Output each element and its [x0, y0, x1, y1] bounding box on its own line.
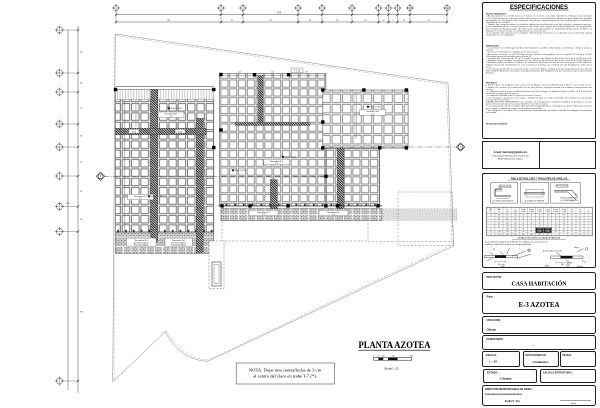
svg-text:• Concreto: f'c = 250 kg/cm2: • Concreto: f'c = 250 kg/cm2 de cimentac… — [486, 47, 592, 50]
svg-text:45°: 45° — [493, 249, 496, 251]
svg-text:47: 47 — [547, 220, 549, 222]
svg-text:5/16: 5/16 — [498, 214, 501, 216]
svg-text:156: 156 — [538, 234, 541, 236]
svg-text:5.07: 5.07 — [514, 228, 517, 230]
svg-text:78: 78 — [539, 226, 541, 228]
svg-text:27: 27 — [531, 217, 533, 219]
svg-text:63: 63 — [563, 223, 565, 225]
svg-text:120: 120 — [522, 234, 525, 236]
svg-text:FECHA:: FECHA: — [563, 354, 573, 357]
svg-text:(T-1): (T-1) — [169, 116, 173, 118]
svg-text:Nervadura N-2: Nervadura N-2 — [135, 240, 149, 242]
svg-text:40: 40 — [571, 226, 573, 228]
svg-text:CASA HABITACIÓN: CASA HABITACIÓN — [512, 280, 568, 288]
svg-text:104: 104 — [555, 228, 558, 230]
svg-text:Nervadura N-1: Nervadura N-1 — [165, 113, 177, 116]
svg-text:UBICACIÓN :: UBICACIÓN : — [487, 319, 502, 322]
svg-text:22: 22 — [531, 214, 533, 216]
svg-text:Nivel +N 273.5: Nivel +N 273.5 — [370, 106, 381, 108]
svg-text:Nivel +N 273.5: Nivel +N 273.5 — [235, 170, 246, 172]
svg-text:Nivel +N 273.5: Nivel +N 273.5 — [151, 196, 162, 198]
svg-text:84: 84 — [555, 226, 557, 228]
svg-text:70: 70 — [547, 226, 549, 228]
svg-text:A: A — [59, 28, 61, 32]
svg-text:25: 25 — [579, 223, 581, 225]
svg-text:Nervadura N-1: Nervadura N-1 — [134, 195, 146, 198]
svg-text:Calle Pejonate Nod 115 altos,: Calle Pejonate Nod 115 altos, Gaviotas S… — [492, 155, 529, 158]
svg-text:3.81: 3.81 — [506, 234, 509, 236]
svg-text:40: 40 — [523, 220, 525, 222]
svg-text:65: 65 — [539, 223, 541, 225]
svg-text:Lg: Lg — [579, 209, 581, 211]
svg-text:94: 94 — [563, 228, 565, 230]
svg-text:200: 200 — [392, 356, 395, 358]
svg-text:3/4: 3/4 — [498, 226, 500, 228]
svg-text:50: 50 — [579, 231, 581, 233]
svg-text:1.98: 1.98 — [514, 223, 517, 225]
svg-text:25: 25 — [523, 214, 525, 216]
svg-text:NOTA: Dejar una contraflecha d: NOTA: Dejar una contraflecha de 3 cm — [249, 368, 322, 373]
svg-text:Federal).: Federal). — [486, 73, 494, 75]
svg-text:(T-1): (T-1) — [275, 163, 279, 165]
svg-text:CALCULO ESTRUCTURAL :: CALCULO ESTRUCTURAL : — [543, 371, 574, 374]
svg-text:80: 80 — [523, 228, 525, 230]
svg-text:279: 279 — [277, 11, 282, 14]
svg-text:H: H — [59, 230, 61, 234]
svg-text:0.79: 0.79 — [506, 214, 509, 216]
svg-text:D.R.O. No.: D.R.O. No. — [504, 399, 521, 403]
svg-text:1.90: 1.90 — [506, 226, 509, 228]
svg-text:Chiapas: Chiapas — [500, 377, 512, 381]
svg-text:150: 150 — [305, 71, 308, 73]
svg-text:38: 38 — [563, 217, 565, 219]
svg-text:56: 56 — [555, 220, 557, 222]
svg-text:54: 54 — [531, 226, 533, 228]
svg-text:36: 36 — [531, 220, 533, 222]
svg-text:otra medida.: otra medida. — [486, 111, 497, 114]
svg-text:3.18: 3.18 — [506, 231, 509, 233]
svg-text:140: 140 — [546, 234, 549, 236]
svg-text:ESTADO :: ESTADO : — [487, 371, 499, 374]
svg-text:20: 20 — [571, 214, 573, 216]
svg-text:30: 30 — [571, 220, 573, 222]
svg-text:60: 60 — [523, 226, 525, 228]
svg-text:1/2: 1/2 — [498, 220, 500, 222]
svg-text:3/8: 3/8 — [498, 217, 500, 219]
svg-text:39: 39 — [539, 217, 541, 219]
svg-text:NO SE: NO SE — [537, 228, 541, 230]
svg-text:0: 0 — [373, 356, 374, 358]
svg-text:0.95: 0.95 — [506, 217, 509, 219]
svg-text:1 1/4: 1 1/4 — [497, 231, 500, 233]
svg-text:50: 50 — [523, 223, 525, 225]
svg-text:100: 100 — [382, 356, 385, 358]
svg-text:1 : 50: 1 : 50 — [489, 360, 497, 364]
svg-text:Nivel +N 273.5: Nivel +N 273.5 — [285, 156, 296, 158]
svg-text:70: 70 — [571, 231, 573, 233]
svg-text:72: 72 — [531, 228, 533, 230]
svg-text:E-mail: dienmarq@gmail.com: E-mail: dienmarq@gmail.com — [494, 151, 528, 154]
svg-text:75: 75 — [563, 226, 565, 228]
svg-text:****************************: **************************** — [485, 393, 523, 397]
svg-text:NO SE: NO SE — [546, 228, 550, 230]
svg-text:Tope(+): Tope(+) — [574, 247, 580, 249]
svg-text:D: D — [59, 122, 61, 126]
svg-text:130: 130 — [555, 231, 558, 233]
svg-text:NTC-RCDF (Normas Técnicas Comp: NTC-RCDF (Normas Técnicas Complementaria… — [486, 70, 592, 73]
svg-text:NOTAS ADICIONALES:: NOTAS ADICIONALES: — [486, 123, 508, 126]
svg-text:Escala 1 : 50: Escala 1 : 50 — [385, 368, 399, 371]
svg-text:Lb (cm): Lb (cm) — [562, 209, 567, 211]
svg-text:35: 35 — [571, 223, 573, 225]
svg-text:1.59: 1.59 — [506, 223, 509, 225]
svg-text:PROYECTO:: PROYECTO: — [487, 275, 503, 279]
svg-text:0.49: 0.49 — [514, 214, 517, 216]
svg-text:Ld (cm): Ld (cm) — [521, 209, 526, 211]
svg-text:2.85: 2.85 — [514, 226, 517, 228]
svg-text:T-7 (*): T-7 (*) — [294, 70, 301, 73]
svg-text:40: 40 — [579, 228, 581, 230]
svg-text:52: 52 — [539, 220, 541, 222]
svg-text:300: 300 — [410, 356, 413, 358]
svg-text:presentarán a su ser longitudi: presentarán a su ser longitudinal. — [486, 34, 515, 37]
svg-text:C: C — [59, 90, 61, 94]
svg-text:varillas se soldarán de acuerd: varillas se soldarán de acuerdo con el s… — [485, 243, 531, 246]
svg-text:• Block hueco de 15x20x40 con: • Block hueco de 15x20x40 con una resist… — [486, 63, 593, 66]
svg-text:Centímetros: Centímetros — [533, 360, 550, 364]
svg-text:150: 150 — [238, 71, 241, 73]
svg-text:1 1/2: 1 1/2 — [497, 234, 500, 236]
svg-text:1.27: 1.27 — [506, 220, 509, 222]
svg-text:E-3 AZOTEA: E-3 AZOTEA — [519, 301, 561, 309]
svg-text:50: 50 — [563, 220, 565, 222]
svg-text:(T-1): (T-1) — [139, 198, 143, 200]
svg-text:Obispo: Obispo — [487, 328, 497, 332]
svg-text:10: 10 — [490, 231, 492, 233]
svg-text:al centro del claro en trabe T: al centro del claro en trabe T-7 (*). — [253, 374, 317, 379]
svg-text:30: 30 — [579, 226, 581, 228]
svg-text:60: 60 — [579, 234, 581, 236]
svg-text:50: 50 — [377, 356, 379, 358]
svg-text:12: 12 — [490, 234, 492, 236]
svg-text:90: 90 — [531, 231, 533, 233]
svg-text:El electrodo será E-70: El electrodo será E-70 — [543, 249, 562, 252]
svg-text:ESCALA :: ESCALA : — [486, 354, 498, 357]
svg-text:Nivel +N 273.5: Nivel +N 273.5 — [171, 108, 182, 110]
svg-text:Firma: Firma — [571, 403, 577, 405]
svg-text:7.92: 7.92 — [514, 231, 517, 233]
svg-text:12: 12 — [587, 234, 589, 236]
svg-text:• Todas las varillas se coloca: • Todas las varillas se colocarán en un … — [486, 86, 593, 89]
svg-text:Plano :: Plano : — [487, 296, 495, 299]
svg-text:35: 35 — [555, 214, 557, 216]
svg-text:18: 18 — [579, 217, 581, 219]
svg-text:PLANTA AZOTEA: PLANTA AZOTEA — [359, 340, 431, 350]
svg-text:35: 35 — [547, 217, 549, 219]
svg-text:85: 85 — [571, 234, 573, 236]
svg-text:(T-1): (T-1) — [262, 214, 266, 216]
svg-text:Nervadura N-2: Nervadura N-2 — [172, 240, 186, 242]
svg-text:30: 30 — [539, 214, 541, 216]
svg-text:Ld (cm): Ld (cm) — [529, 209, 534, 211]
svg-text:Nervadura N-5: Nervadura N-5 — [327, 211, 339, 214]
svg-text:+: + — [532, 345, 534, 348]
svg-text:ACOTACIONES EN :: ACOTACIONES EN : — [525, 354, 547, 357]
svg-text:1.27: 1.27 — [514, 220, 517, 222]
svg-text:Lb (cm): Lb (cm) — [553, 209, 558, 211]
svg-text:30: 30 — [563, 214, 565, 216]
svg-text:DIRECTOR RESPONSABLE DE OBRA :: DIRECTOR RESPONSABLE DE OBRA : — [485, 387, 533, 391]
svg-text:Nervadura N-1: Nervadura N-1 — [270, 160, 282, 163]
svg-text:150: 150 — [271, 71, 274, 73]
svg-text:55: 55 — [571, 228, 573, 230]
svg-text:108: 108 — [530, 234, 533, 236]
svg-text:2.54: 2.54 — [506, 228, 509, 230]
svg-text:70: 70 — [555, 223, 557, 225]
svg-text:15: 15 — [579, 214, 581, 216]
svg-text:G: G — [58, 204, 60, 208]
svg-text:25: 25 — [571, 217, 573, 219]
svg-text:0.71: 0.71 — [514, 217, 517, 219]
svg-text:20: 20 — [579, 220, 581, 222]
svg-text:(T-1): (T-1) — [371, 114, 375, 116]
svg-text:varilla Ø: varilla Ø — [577, 266, 584, 268]
svg-text:5/8: 5/8 — [498, 223, 500, 225]
svg-text:10: 10 — [587, 231, 589, 233]
svg-text:86000 Villahermosa, Tabasco: 86000 Villahermosa, Tabasco — [498, 157, 523, 160]
svg-text:B: B — [59, 71, 61, 75]
svg-text:2.5: 2.5 — [490, 214, 492, 216]
svg-text:Ldh: Ldh — [571, 209, 573, 211]
svg-text:PROPIETARIO :: PROPIETARIO : — [487, 338, 505, 341]
svg-text:(cm2): (cm2) — [513, 211, 517, 213]
svg-text:Nervadura N-1: Nervadura N-1 — [367, 110, 379, 113]
svg-text:Nervadura N-5: Nervadura N-5 — [257, 211, 269, 214]
svg-text:11.40: 11.40 — [513, 234, 517, 236]
svg-text:26: 26 — [547, 214, 549, 216]
svg-text:(T-1): (T-1) — [332, 214, 336, 216]
svg-text:• Se ahogará a la traba de la: • Se ahogará a la traba de la separación… — [486, 109, 592, 112]
svg-text:E: E — [59, 145, 61, 149]
svg-text:45: 45 — [531, 223, 533, 225]
svg-text:42: 42 — [555, 217, 557, 219]
svg-text:30: 30 — [523, 217, 525, 219]
svg-text:59: 59 — [547, 223, 549, 225]
svg-text:117: 117 — [563, 231, 565, 233]
svg-text:100: 100 — [522, 231, 525, 233]
